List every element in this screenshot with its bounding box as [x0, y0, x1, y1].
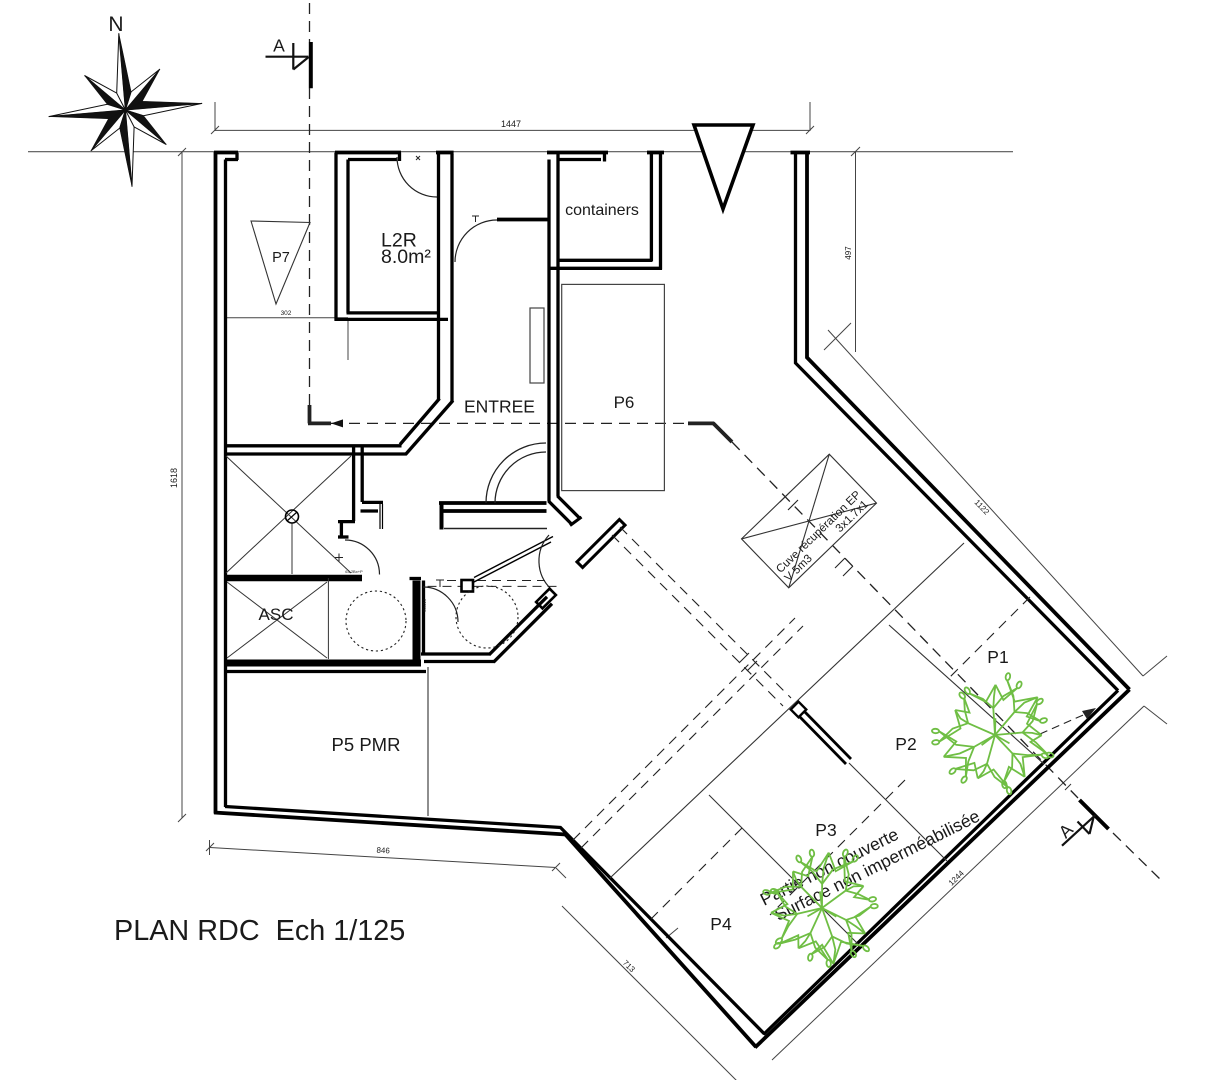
svg-text:1618: 1618 [169, 468, 179, 488]
svg-text:8.0m²: 8.0m² [381, 246, 431, 268]
svg-text:713: 713 [621, 958, 637, 974]
svg-text:Cuve récupération EP: Cuve récupération EP [774, 489, 864, 576]
svg-text:PLAN RDC Ech 1/125: PLAN RDC Ech 1/125 [114, 915, 405, 947]
svg-text:ENTREE: ENTREE [464, 397, 535, 417]
svg-text:containers: containers [565, 202, 639, 219]
svg-text:P2: P2 [895, 734, 916, 754]
svg-text:N: N [108, 13, 123, 36]
svg-text:P1: P1 [987, 647, 1008, 667]
svg-text:P7: P7 [272, 250, 290, 266]
svg-text:P5 PMR: P5 PMR [332, 734, 401, 755]
svg-text:846: 846 [376, 846, 390, 856]
svg-text:P6: P6 [614, 393, 635, 412]
svg-text:90x213: 90x213 [422, 598, 427, 612]
svg-text:A: A [273, 36, 285, 56]
svg-text:1447: 1447 [501, 119, 521, 129]
svg-text:ASC: ASC [259, 605, 294, 624]
svg-text:302: 302 [281, 310, 292, 317]
svg-text:497: 497 [844, 246, 853, 260]
svg-text:1122: 1122 [973, 498, 992, 517]
svg-text:P4: P4 [710, 914, 732, 934]
svg-text:P3: P3 [815, 820, 836, 840]
svg-text:A: A [1055, 819, 1078, 842]
